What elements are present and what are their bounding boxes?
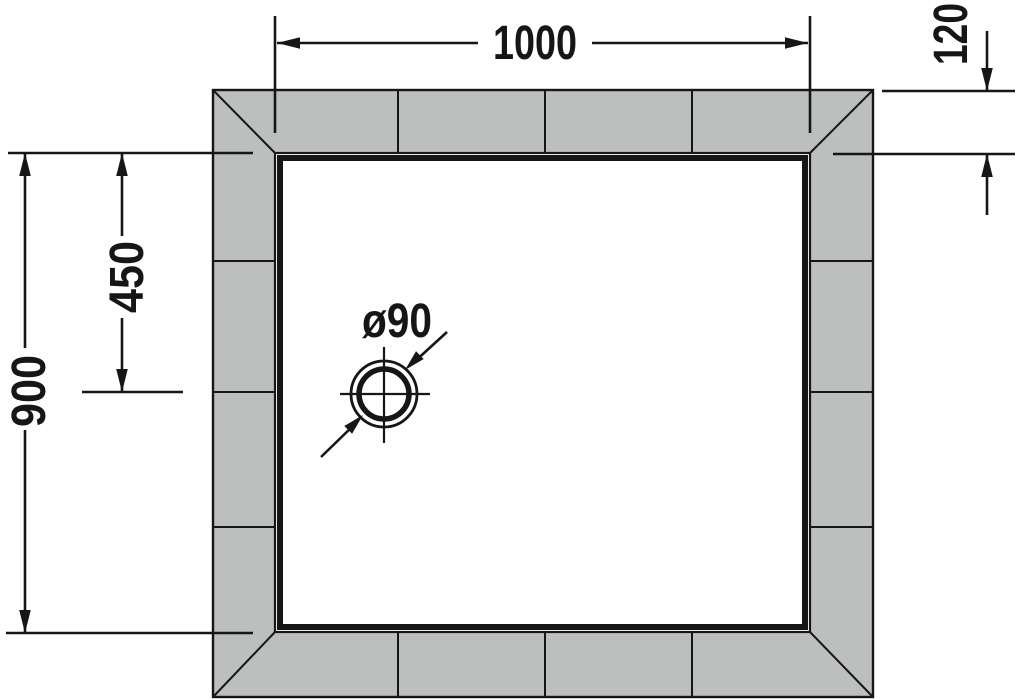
shower-tray-drawing: 1000 120 450 900 ø90 bbox=[0, 0, 1024, 699]
tray-surface bbox=[275, 153, 810, 632]
dim-label-drain-offset-450: 450 bbox=[101, 241, 154, 313]
dim-label-depth-900: 900 bbox=[3, 355, 56, 427]
drawing-canvas: 1000 120 450 900 ø90 bbox=[0, 0, 1024, 699]
arrow-1000-left bbox=[277, 37, 300, 49]
arrow-450-up bbox=[116, 153, 128, 176]
arrow-900-down bbox=[19, 610, 31, 633]
arrow-120-up bbox=[981, 154, 993, 177]
arrow-120-down bbox=[981, 68, 993, 91]
dim-label-width-1000: 1000 bbox=[493, 17, 577, 70]
arrow-450-down bbox=[116, 369, 128, 392]
arrow-900-up bbox=[19, 153, 31, 176]
drawing-root: 1000 120 450 900 ø90 bbox=[3, 3, 1015, 697]
arrow-1000-right bbox=[785, 37, 808, 49]
dim-label-drain-diameter: ø90 bbox=[362, 295, 432, 348]
dim-label-flange-120: 120 bbox=[925, 3, 978, 65]
